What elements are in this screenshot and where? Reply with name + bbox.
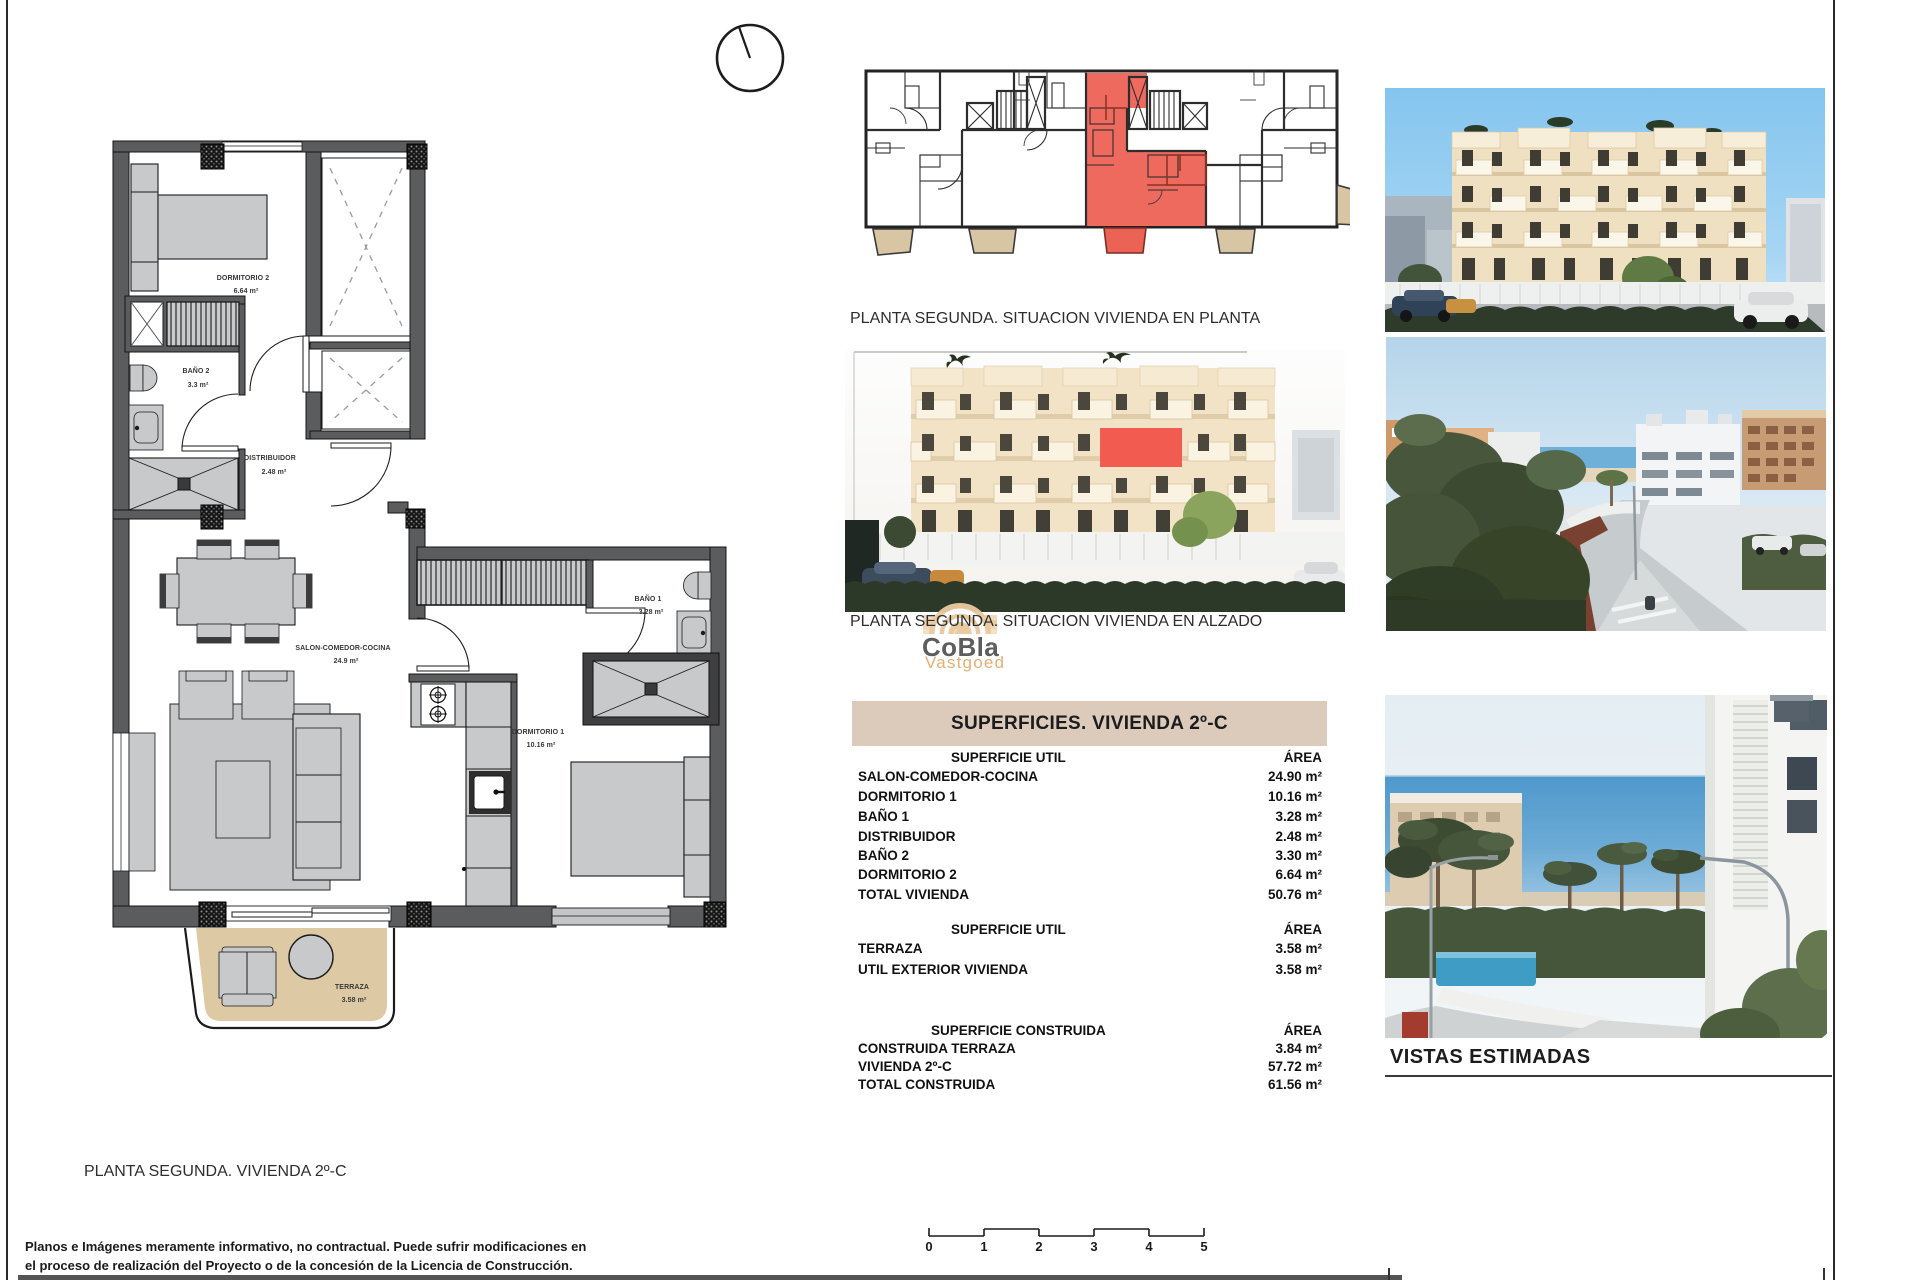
svg-text:10.16 m²: 10.16 m² (527, 742, 556, 749)
svg-text:2: 2 (1035, 1239, 1042, 1254)
svg-text:0: 0 (925, 1239, 932, 1254)
svg-text:2.48 m²: 2.48 m² (262, 469, 287, 476)
svg-text:BAÑO 2: BAÑO 2 (182, 366, 209, 375)
svg-text:SALON-COMEDOR-COCINA: SALON-COMEDOR-COCINA (295, 645, 390, 652)
svg-text:3: 3 (1090, 1239, 1097, 1254)
svg-text:DORMITORIO 2: DORMITORIO 2 (217, 275, 269, 282)
svg-text:BAÑO 1: BAÑO 1 (634, 594, 661, 603)
svg-text:1: 1 (980, 1239, 987, 1254)
svg-text:DORMITORIO 1: DORMITORIO 1 (512, 729, 564, 736)
svg-text:4: 4 (1145, 1239, 1153, 1254)
svg-text:3.58 m²: 3.58 m² (342, 997, 367, 1004)
svg-text:3.28 m²: 3.28 m² (639, 609, 664, 616)
svg-text:24.9 m²: 24.9 m² (334, 658, 359, 665)
svg-text:TERRAZA: TERRAZA (335, 984, 369, 991)
svg-text:6.64 m²: 6.64 m² (234, 288, 259, 295)
svg-text:3.3 m²: 3.3 m² (188, 382, 209, 389)
svg-text:DISTRIBUIDOR: DISTRIBUIDOR (244, 455, 296, 462)
svg-text:Vastgoed: Vastgoed (925, 653, 1005, 672)
svg-text:5: 5 (1200, 1239, 1207, 1254)
